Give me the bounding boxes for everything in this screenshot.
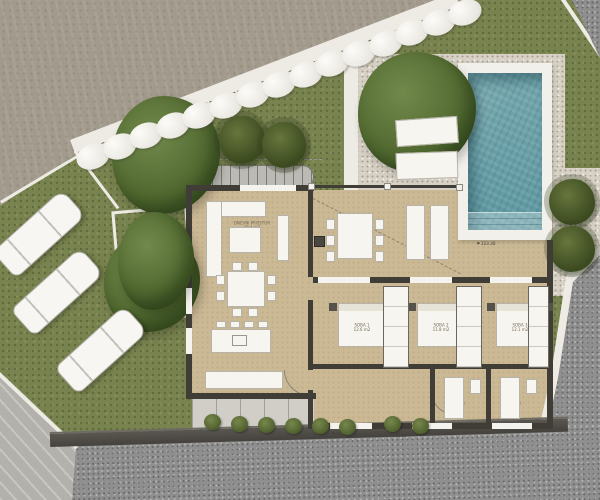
house-wall (308, 300, 313, 370)
window (186, 328, 192, 354)
house-wall (308, 185, 313, 277)
furniture (244, 321, 254, 328)
furniture (326, 219, 335, 230)
house-wall (186, 393, 316, 399)
window (410, 277, 452, 283)
window (240, 185, 296, 191)
marker-path-level: +123.30 (389, 434, 407, 439)
nightstand (329, 303, 337, 311)
furniture (375, 235, 384, 246)
bush-small (285, 418, 302, 434)
bush-small (258, 417, 275, 433)
label-bedroom-area: 11.8 m2 (433, 328, 450, 333)
terrace-post (384, 183, 391, 190)
bush-small (204, 414, 221, 430)
furniture (216, 275, 225, 285)
furniture (267, 291, 276, 301)
site-plan: DNEVNI PROSTOR 28.4 m2 JEDILNICA 14.8 m2… (0, 0, 600, 500)
furniture (337, 213, 373, 259)
wardrobe (383, 286, 409, 368)
furniture (326, 235, 335, 246)
terrace-lounger (406, 205, 425, 260)
island-sink (232, 335, 247, 346)
window (186, 288, 192, 314)
furniture (248, 262, 258, 271)
flag-icon: ⚑ (331, 432, 335, 437)
bed: SOBA 112.6 m2 (338, 303, 386, 347)
furniture (229, 227, 261, 253)
bush-small (412, 418, 429, 434)
sun-lounger (396, 151, 459, 180)
furniture (216, 291, 225, 301)
furniture (277, 215, 289, 261)
furniture (500, 377, 520, 419)
label-bedroom-area: 12.6 m2 (354, 328, 371, 333)
grill (314, 236, 325, 247)
olive-tree-1 (219, 116, 265, 164)
house-wall (486, 369, 491, 423)
furniture (258, 321, 268, 328)
marker-pool-level: ⚑123.30 (476, 242, 495, 247)
furniture (375, 219, 384, 230)
furniture (470, 379, 481, 394)
furniture (216, 321, 226, 328)
marker-pool-level-text: 123.30 (481, 242, 496, 247)
furniture (248, 308, 258, 317)
bush-right-2 (549, 226, 595, 272)
furniture (326, 251, 335, 262)
furniture (230, 321, 240, 328)
bush-small (339, 419, 356, 435)
furniture (205, 371, 283, 389)
furniture (206, 201, 222, 277)
wardrobe (528, 286, 549, 368)
furniture (267, 275, 276, 285)
bush-small (384, 416, 401, 432)
sun-lounger (395, 116, 459, 147)
terrace-post (456, 184, 463, 191)
bush-small (231, 416, 248, 432)
terrace-lounger (430, 205, 449, 260)
furniture (375, 251, 384, 262)
furniture (232, 262, 242, 271)
label-bedroom: SOBA 211.8 m2 (433, 324, 450, 334)
label-bedroom: SOBA 112.6 m2 (354, 324, 371, 334)
window (492, 423, 532, 429)
furniture (227, 271, 265, 307)
window (490, 277, 532, 283)
label-bedroom-area: 12.1 m2 (512, 328, 529, 333)
furniture (526, 379, 537, 394)
bush-right-1 (549, 179, 595, 225)
pool-steps (468, 212, 542, 230)
marker-path-level-text: +123.30 (389, 434, 407, 439)
path-border-vertical (344, 56, 358, 198)
window (318, 277, 370, 283)
house-wall (430, 369, 435, 423)
wardrobe (456, 286, 482, 368)
nightstand (487, 303, 495, 311)
flag-icon: ⚑ (476, 242, 480, 247)
furniture (232, 308, 242, 317)
terrace-post (308, 183, 315, 190)
nightstand (408, 303, 416, 311)
pool-water (468, 73, 542, 230)
bush-small (312, 418, 329, 434)
olive-tree-2 (262, 122, 306, 168)
furniture (444, 377, 464, 419)
label-bedroom: SOBA 312.1 m2 (512, 324, 529, 334)
